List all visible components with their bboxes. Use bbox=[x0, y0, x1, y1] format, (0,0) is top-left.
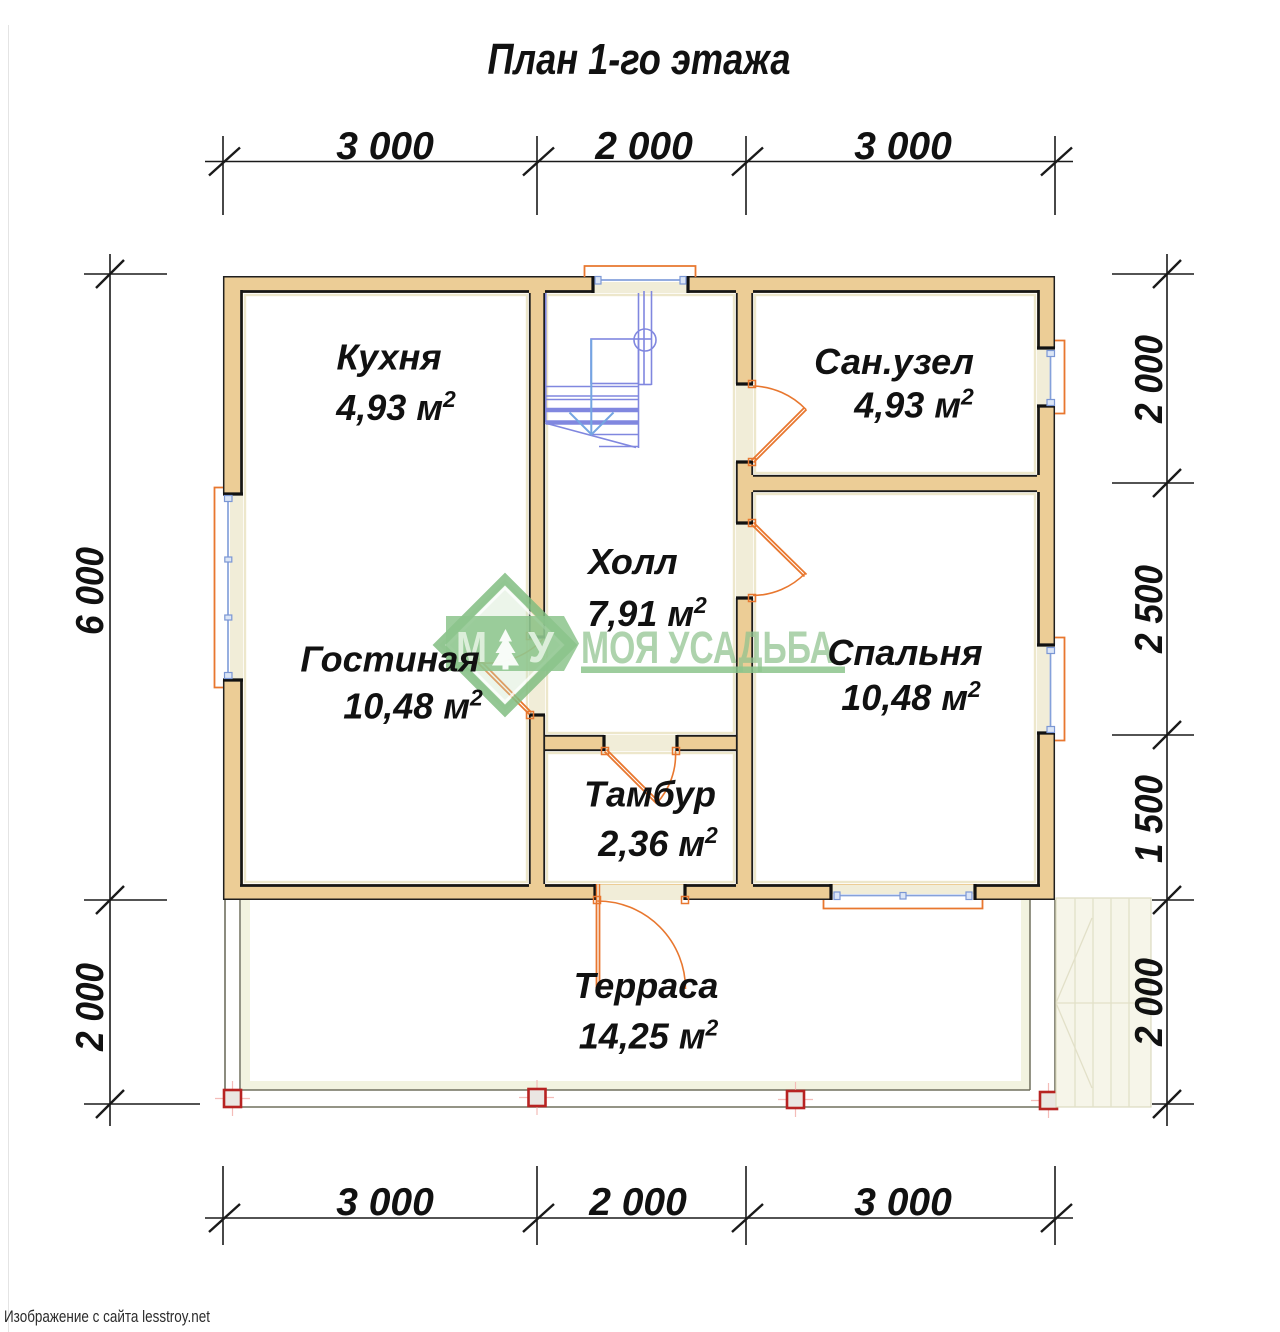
svg-text:10,48 м2: 10,48 м2 bbox=[343, 685, 483, 727]
svg-text:2,36 м2: 2,36 м2 bbox=[597, 822, 718, 864]
svg-text:2 000: 2 000 bbox=[1128, 335, 1171, 424]
svg-text:3 000: 3 000 bbox=[336, 1181, 434, 1224]
svg-text:План 1-го этажа: План 1-го этажа bbox=[488, 35, 791, 84]
svg-text:6 000: 6 000 bbox=[69, 547, 112, 635]
svg-text:Гостиная: Гостиная bbox=[300, 639, 479, 680]
svg-text:10,48 м2: 10,48 м2 bbox=[841, 676, 981, 718]
svg-text:Холл: Холл bbox=[586, 541, 677, 582]
svg-text:Терраса: Терраса bbox=[574, 965, 719, 1006]
svg-text:Сан.узел: Сан.узел bbox=[814, 341, 974, 382]
svg-text:3 000: 3 000 bbox=[854, 125, 952, 168]
svg-text:Спальня: Спальня bbox=[827, 632, 982, 673]
svg-text:Кухня: Кухня bbox=[336, 337, 441, 378]
svg-text:3 000: 3 000 bbox=[854, 1181, 952, 1224]
svg-text:4,93 м2: 4,93 м2 bbox=[853, 384, 974, 426]
svg-text:У: У bbox=[528, 623, 555, 672]
svg-text:14,25 м2: 14,25 м2 bbox=[579, 1015, 719, 1057]
svg-text:Изображение с сайта lesstroy.n: Изображение с сайта lesstroy.net bbox=[4, 1308, 210, 1326]
svg-text:2 000: 2 000 bbox=[1128, 958, 1171, 1047]
svg-text:2 000: 2 000 bbox=[69, 963, 112, 1052]
svg-text:Тамбур: Тамбур bbox=[584, 774, 716, 815]
svg-text:2 000: 2 000 bbox=[588, 1181, 687, 1224]
svg-text:2 000: 2 000 bbox=[594, 125, 693, 168]
svg-text:2 500: 2 500 bbox=[1128, 565, 1171, 654]
svg-text:1 500: 1 500 bbox=[1128, 775, 1171, 863]
svg-text:4,93 м2: 4,93 м2 bbox=[335, 386, 456, 428]
svg-text:7,91 м2: 7,91 м2 bbox=[587, 592, 707, 634]
svg-text:3 000: 3 000 bbox=[336, 125, 434, 168]
